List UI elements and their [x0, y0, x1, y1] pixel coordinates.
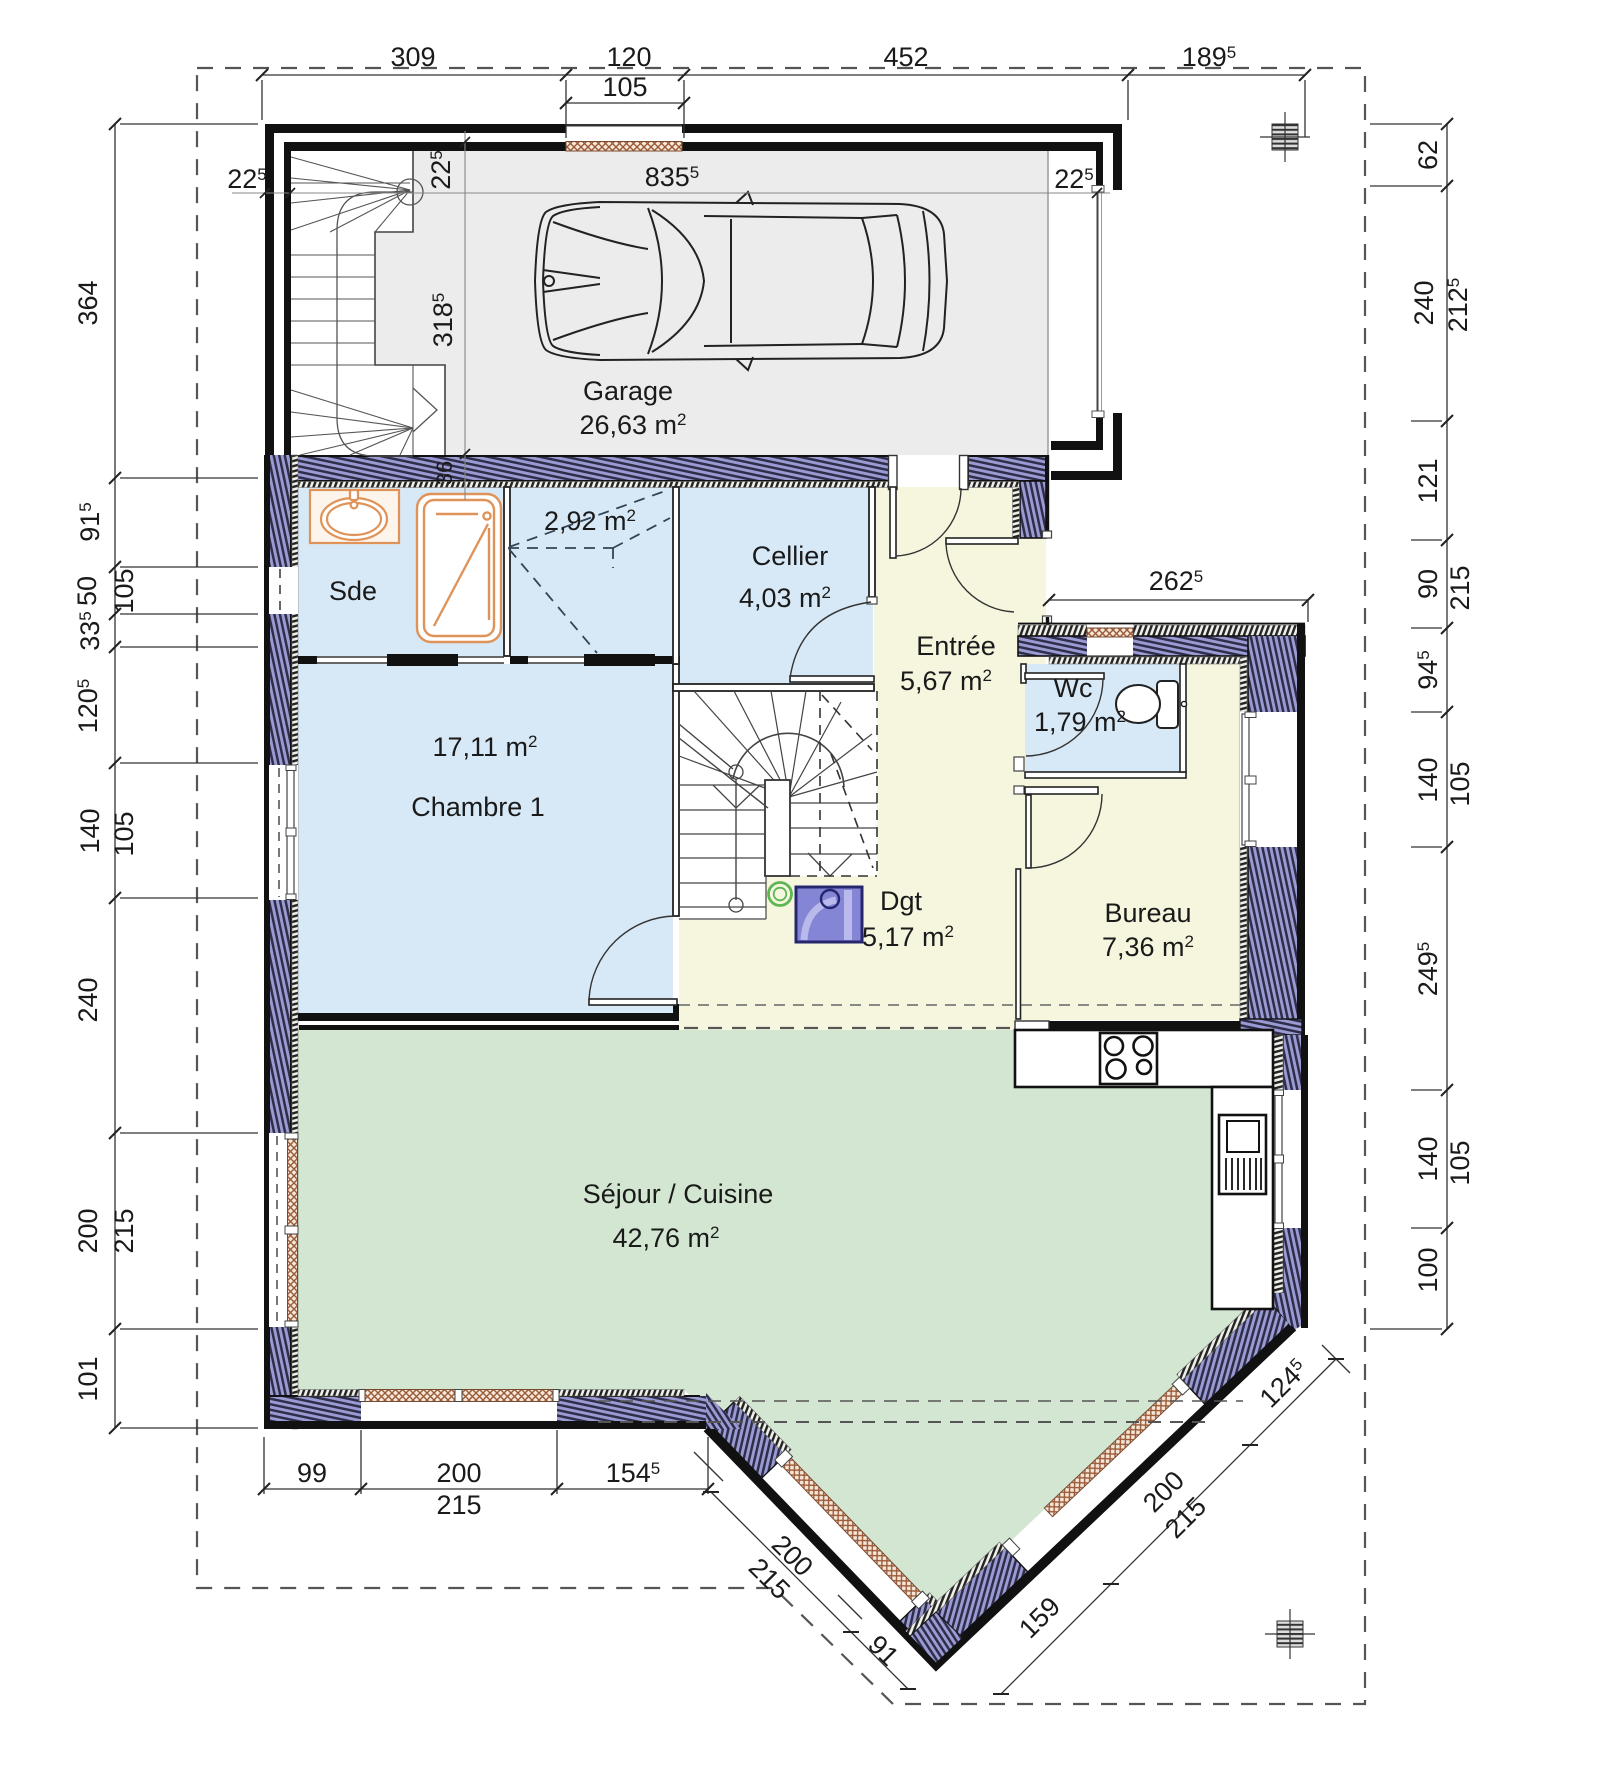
svg-text:240: 240 [1409, 280, 1439, 325]
svg-text:105: 105 [109, 811, 139, 856]
svg-text:452: 452 [883, 42, 928, 72]
svg-text:309: 309 [390, 42, 435, 72]
svg-text:50: 50 [72, 576, 102, 606]
svg-text:200: 200 [436, 1458, 481, 1488]
svg-text:200: 200 [73, 1208, 103, 1253]
svg-text:17,11 m2: 17,11 m2 [432, 732, 537, 762]
svg-text:2,92 m2: 2,92 m2 [544, 506, 636, 536]
svg-text:42,76 m2: 42,76 m2 [612, 1223, 719, 1253]
svg-text:Entrée: Entrée [916, 631, 996, 661]
svg-text:5,67 m2: 5,67 m2 [900, 666, 992, 696]
svg-text:1,79 m2: 1,79 m2 [1034, 707, 1126, 737]
svg-text:105: 105 [1445, 1140, 1475, 1185]
svg-text:36: 36 [432, 461, 457, 485]
svg-text:121: 121 [1413, 458, 1443, 503]
svg-text:120: 120 [606, 42, 651, 72]
svg-text:26,63 m2: 26,63 m2 [579, 410, 686, 440]
svg-text:90: 90 [1413, 569, 1443, 599]
svg-text:62: 62 [1413, 140, 1443, 170]
svg-text:Séjour / Cuisine: Séjour / Cuisine [583, 1179, 774, 1209]
svg-text:7,36 m2: 7,36 m2 [1102, 932, 1194, 962]
svg-text:364: 364 [73, 280, 103, 325]
svg-text:105: 105 [1445, 761, 1475, 806]
svg-text:105: 105 [109, 568, 139, 613]
svg-text:4,03 m2: 4,03 m2 [739, 583, 831, 613]
svg-text:101: 101 [73, 1356, 103, 1401]
svg-text:Sde: Sde [329, 576, 377, 606]
svg-text:5,17 m2: 5,17 m2 [862, 922, 954, 952]
svg-text:215: 215 [1445, 565, 1475, 610]
svg-text:Cellier: Cellier [752, 541, 829, 571]
svg-text:140: 140 [1413, 1136, 1443, 1181]
svg-text:140: 140 [75, 808, 105, 853]
svg-text:215: 215 [436, 1490, 481, 1520]
svg-text:100: 100 [1413, 1247, 1443, 1292]
svg-text:240: 240 [73, 977, 103, 1022]
svg-text:Garage: Garage [583, 376, 673, 406]
svg-text:140: 140 [1413, 757, 1443, 802]
svg-text:Wc: Wc [1054, 673, 1093, 703]
svg-text:Chambre 1: Chambre 1 [411, 792, 545, 822]
svg-text:Bureau: Bureau [1104, 898, 1191, 928]
svg-text:105: 105 [602, 72, 647, 102]
svg-text:215: 215 [109, 1208, 139, 1253]
svg-text:99: 99 [297, 1458, 327, 1488]
svg-text:Dgt: Dgt [880, 886, 923, 916]
